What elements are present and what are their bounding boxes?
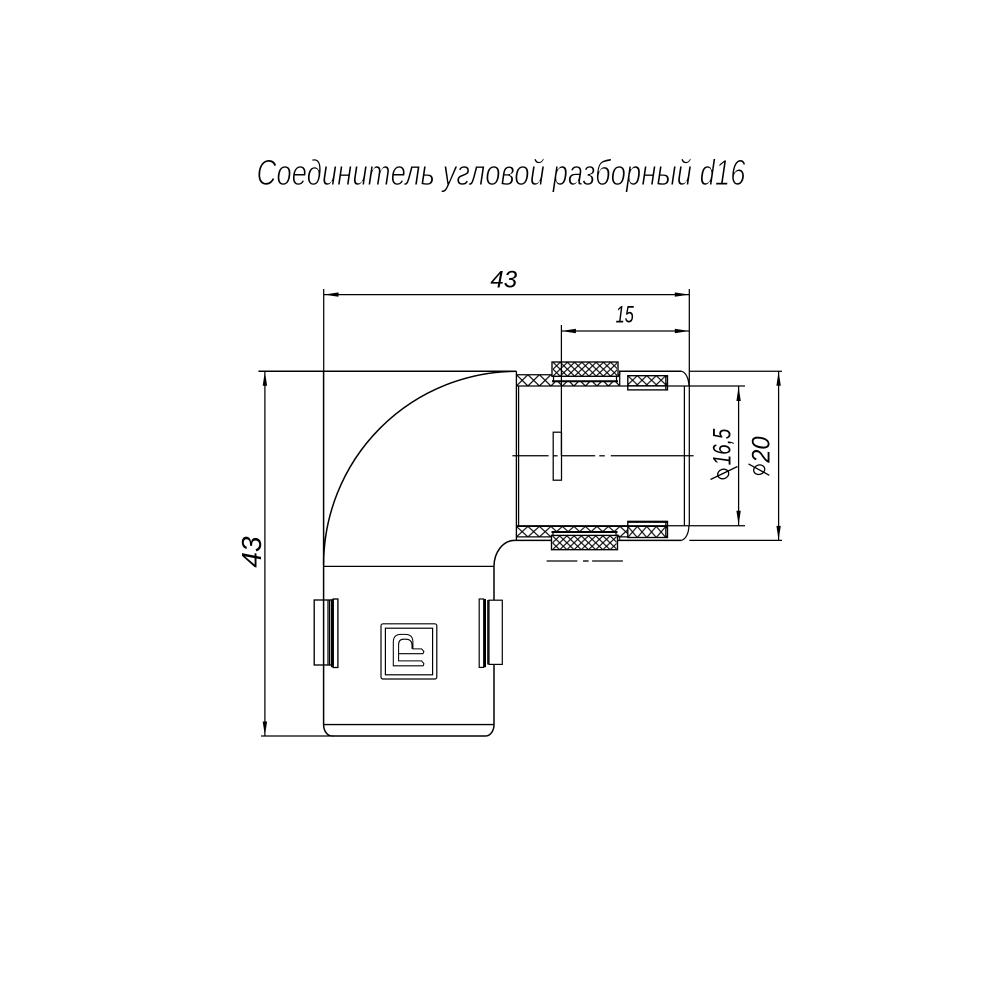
svg-text:43: 43 bbox=[490, 267, 517, 294]
svg-text:Соединитель угловой разборный: Соединитель угловой разборный d16 bbox=[256, 152, 745, 192]
svg-text:16,5: 16,5 bbox=[708, 428, 736, 465]
svg-text:43: 43 bbox=[236, 536, 267, 568]
svg-text:20: 20 bbox=[748, 436, 776, 464]
svg-text:15: 15 bbox=[616, 301, 635, 328]
